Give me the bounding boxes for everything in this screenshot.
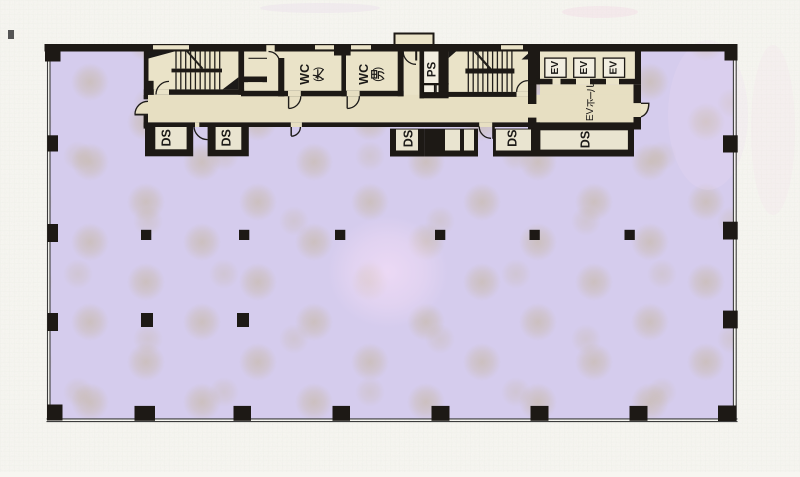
svg-text:DS: DS (160, 129, 174, 146)
svg-text:WC: WC (357, 64, 371, 85)
svg-text:DS: DS (402, 130, 416, 147)
svg-text:): ) (372, 67, 384, 71)
svg-text:EV: EV (585, 108, 596, 122)
svg-text:DS: DS (506, 130, 520, 147)
svg-text:EV: EV (609, 61, 620, 75)
svg-text:PS: PS (427, 62, 439, 78)
svg-text:EV: EV (550, 61, 561, 75)
svg-text:EV: EV (579, 61, 590, 75)
svg-text:DS: DS (579, 131, 593, 148)
svg-text:WC: WC (298, 64, 312, 85)
svg-text:DS: DS (220, 129, 234, 146)
